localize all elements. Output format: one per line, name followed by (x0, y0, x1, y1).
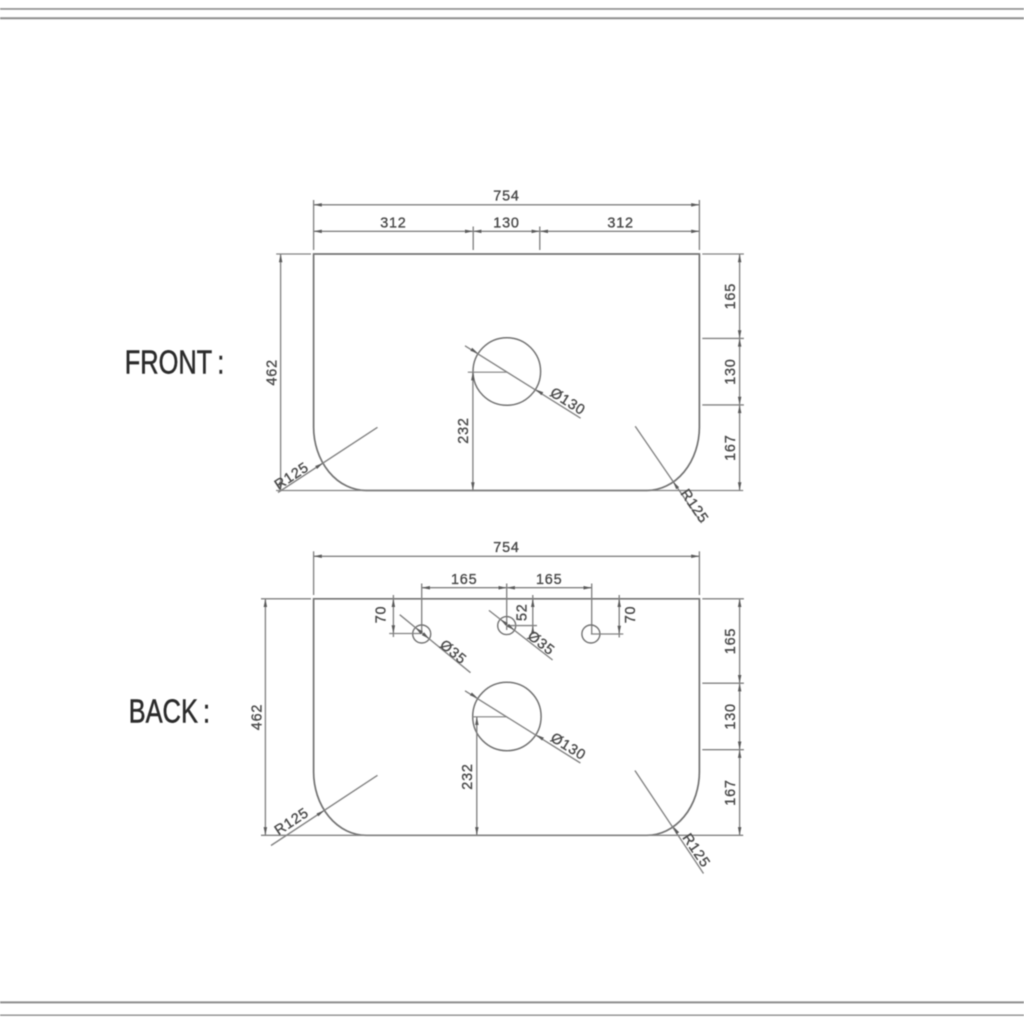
svg-text:52: 52 (515, 603, 531, 621)
svg-text:BACK :: BACK : (129, 692, 211, 729)
svg-text:232: 232 (460, 763, 476, 789)
svg-text:462: 462 (249, 704, 265, 730)
svg-text:165: 165 (723, 283, 739, 309)
svg-text:754: 754 (493, 189, 519, 205)
svg-text:312: 312 (607, 215, 633, 231)
svg-text:70: 70 (374, 606, 390, 624)
svg-text:167: 167 (723, 434, 739, 460)
svg-text:462: 462 (265, 359, 281, 385)
svg-text:165: 165 (536, 572, 562, 588)
svg-text:165: 165 (723, 628, 739, 654)
svg-text:130: 130 (493, 215, 519, 231)
svg-text:167: 167 (723, 779, 739, 805)
svg-text:70: 70 (623, 606, 639, 624)
svg-text:130: 130 (723, 703, 739, 729)
svg-text:312: 312 (380, 215, 406, 231)
svg-text:FRONT :: FRONT : (125, 344, 225, 381)
svg-text:130: 130 (723, 358, 739, 384)
svg-text:165: 165 (451, 572, 477, 588)
svg-text:754: 754 (493, 540, 519, 556)
svg-text:232: 232 (456, 417, 472, 443)
